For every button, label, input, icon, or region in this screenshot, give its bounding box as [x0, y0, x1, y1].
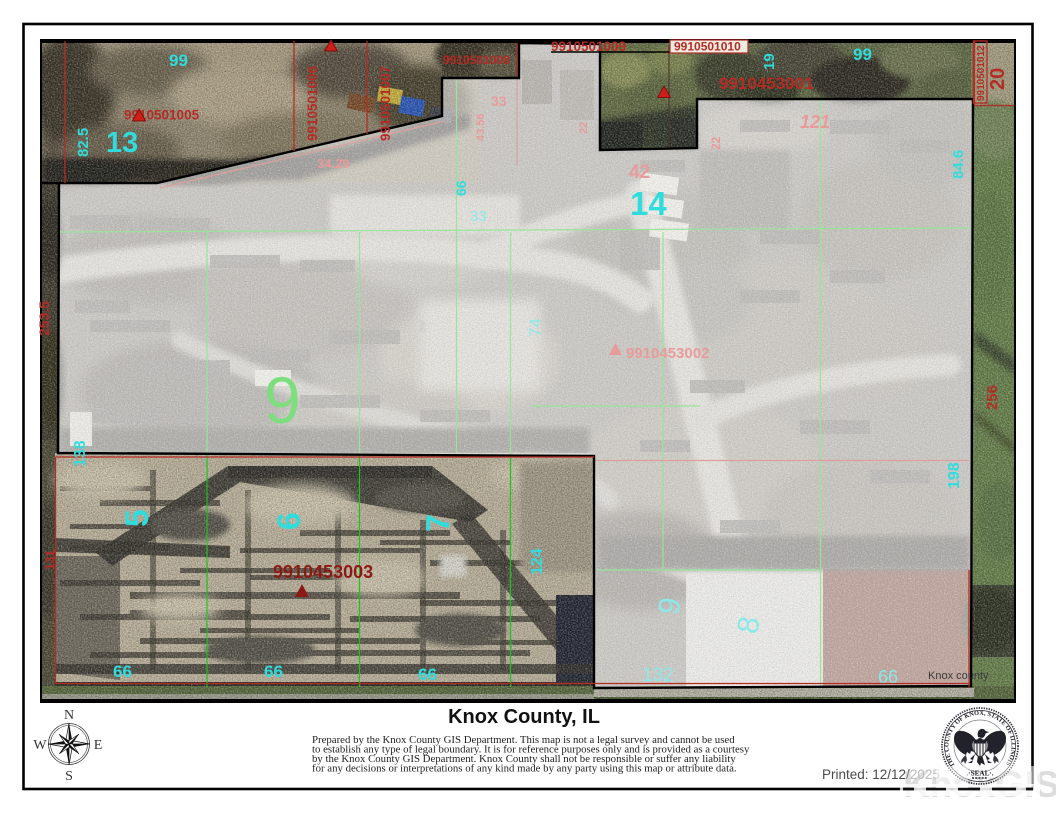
svg-text:124: 124	[529, 548, 546, 575]
svg-text:9910501006: 9910501006	[305, 65, 320, 141]
svg-text:6: 6	[271, 512, 307, 530]
svg-text:7: 7	[420, 514, 456, 532]
svg-text:256: 256	[984, 385, 1001, 410]
svg-text:9910501012: 9910501012	[976, 45, 987, 101]
svg-text:253.5: 253.5	[36, 301, 52, 336]
svg-text:9910501009: 9910501009	[551, 39, 626, 54]
svg-text:9910453001: 9910453001	[719, 74, 814, 93]
svg-text:5: 5	[119, 509, 155, 527]
svg-text:14: 14	[630, 185, 667, 222]
svg-text:20: 20	[987, 68, 1009, 90]
svg-text:N: N	[64, 708, 74, 723]
svg-text:66: 66	[418, 665, 437, 684]
svg-text:9910501008: 9910501008	[443, 53, 510, 67]
svg-text:66: 66	[113, 662, 132, 681]
svg-text:9910453003: 9910453003	[273, 562, 373, 582]
svg-text:.·SEAL·.: .·SEAL·.	[966, 770, 993, 778]
svg-text:99: 99	[169, 51, 188, 70]
svg-text:138: 138	[72, 440, 89, 467]
svg-text:19: 19	[761, 53, 778, 70]
svg-text:Knox County, IL: Knox County, IL	[448, 706, 600, 728]
svg-text:13: 13	[106, 127, 138, 159]
svg-text:S: S	[65, 769, 73, 784]
svg-text:Knox county: Knox county	[928, 670, 989, 682]
svg-text:for any decisions or interpret: for any decisions or interpretations of …	[312, 763, 737, 775]
svg-text:66: 66	[264, 662, 283, 681]
svg-text:9910501010: 9910501010	[674, 40, 741, 54]
svg-text:W: W	[33, 738, 47, 753]
svg-text:E: E	[94, 738, 103, 753]
svg-text:9: 9	[264, 363, 301, 437]
svg-text:99: 99	[853, 45, 872, 64]
svg-text:82.5: 82.5	[75, 128, 92, 157]
svg-text:198: 198	[946, 462, 963, 489]
svg-text:131: 131	[43, 550, 57, 570]
svg-text:66: 66	[453, 180, 469, 196]
svg-text:84.6: 84.6	[950, 150, 967, 179]
svg-text:9910501007: 9910501007	[378, 66, 393, 141]
